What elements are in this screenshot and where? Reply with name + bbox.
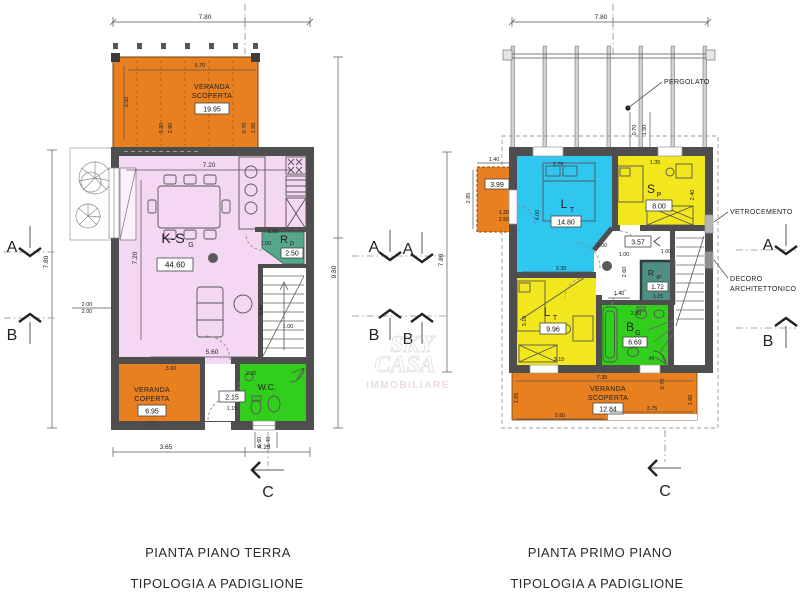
ff-dim-b2-w: 1.35 bbox=[650, 160, 661, 166]
gf-dim-veranda-height: 3.50 bbox=[124, 97, 130, 108]
gf-dim-ls2: 2.00 bbox=[82, 309, 93, 315]
floor-plan-page: 7.80 5.70 3.50 VERANDA SCOPERTA 19.95 3 bbox=[0, 0, 800, 600]
ff-dim-hall-h: 2.60 bbox=[622, 267, 628, 278]
gf-dim-room-w: 7.20 bbox=[203, 162, 216, 169]
section-marker-a-ff-right: A bbox=[763, 224, 797, 254]
gf-veranda-coperta-name2: COPERTA bbox=[134, 396, 169, 403]
svg-text:B: B bbox=[369, 327, 380, 344]
gf-dim-ls1: 2.00 bbox=[82, 302, 93, 308]
svg-text:B: B bbox=[7, 327, 18, 344]
floor-plan-drawing: 7.80 5.70 3.50 VERANDA SCOPERTA 19.95 3 bbox=[0, 0, 800, 600]
svg-text:A: A bbox=[369, 239, 380, 256]
ff-ripostiglio-area: 1.72 bbox=[651, 284, 664, 291]
ff-dim-ps1: 0.70 bbox=[632, 125, 638, 136]
gf-dim-vss1: 3.20 bbox=[159, 123, 165, 134]
ff-decoro-label1: DECORO bbox=[730, 276, 763, 283]
ff-decoro-label2: ARCHITETTONICO bbox=[730, 286, 797, 293]
gf-dim-bs2: 1.40 bbox=[266, 437, 272, 448]
ff-right-annotations: VETROCEMENTO DECORO ARCHITETTONICO bbox=[714, 209, 797, 293]
ff-bedroom2-area: 8.00 bbox=[652, 204, 666, 211]
ff-dim-bal-s1: 1.20 bbox=[499, 210, 510, 216]
gf-dim-top: 7.80 bbox=[199, 14, 212, 21]
gf-veranda-scoperta-area: 19.95 bbox=[203, 107, 221, 114]
ff-dim-bal-h: 2.85 bbox=[466, 193, 472, 204]
ff-veranda-name1: VERANDA bbox=[590, 386, 626, 393]
ff-bedroom1-label: L bbox=[561, 197, 568, 211]
gf-dim-rp-w: 1.90 bbox=[268, 229, 279, 235]
ff-dim-left: 7.80 bbox=[438, 253, 445, 266]
svg-text:A: A bbox=[7, 239, 18, 256]
ff-bedroom3-area: 9.96 bbox=[546, 327, 560, 334]
ff-dim-ver-t: 7.35 bbox=[597, 375, 608, 381]
ff-caption-line1: PIANTA PRIMO PIANO bbox=[528, 545, 673, 560]
ff-ripostiglio-label: R bbox=[648, 268, 654, 278]
gf-dim-left: 7.80 bbox=[43, 255, 50, 268]
gf-dim-bottom1: 3.65 bbox=[160, 444, 173, 451]
ff-bedroom3-room bbox=[516, 278, 596, 366]
ff-dim-ps2: 1.50 bbox=[642, 125, 648, 136]
ff-hallway-arrow bbox=[654, 237, 660, 246]
gf-dim-bs1: 0.60 bbox=[257, 437, 263, 448]
gf-wc-label: W.C. bbox=[258, 382, 276, 392]
gf-kitchen-living-sub: G bbox=[188, 242, 193, 249]
gf-veranda-coperta-area: 6.95 bbox=[145, 409, 159, 416]
section-marker-a-gf-right: A bbox=[369, 230, 401, 260]
gf-kitchen-living-area: 44.60 bbox=[165, 261, 186, 270]
ff-ripostiglio-sub: IP bbox=[656, 275, 662, 281]
ff-dim-ver-s: 0.70 bbox=[660, 379, 666, 390]
svg-text:CASA: CASA bbox=[374, 352, 435, 378]
ff-dim-rip-w: 1.15 bbox=[653, 294, 663, 300]
gf-column bbox=[208, 253, 218, 263]
ff-dim-ver-l: 1.85 bbox=[514, 393, 520, 404]
ff-dim-hall2: 1.00 bbox=[661, 249, 672, 255]
section-marker-a-ff-left: A bbox=[403, 232, 433, 262]
svg-text:B: B bbox=[763, 333, 774, 350]
section-marker-a-gf-left: A bbox=[7, 226, 41, 256]
gf-dim-vss3: 0.70 bbox=[242, 123, 248, 134]
gf-veranda-scoperta-name1: VERANDA bbox=[194, 84, 230, 91]
ff-dim-ver-b1: 3.50 bbox=[555, 413, 566, 419]
ff-veranda-name2: SCOPERTA bbox=[588, 395, 628, 402]
ff-veranda-area: 12.84 bbox=[599, 407, 617, 414]
ff-dim-bal-s2: 2.50 bbox=[499, 217, 510, 223]
section-marker-b-gf-left: B bbox=[7, 314, 41, 344]
section-marker-b-ff-right: B bbox=[763, 318, 797, 350]
ff-top-dimension: 7.80 bbox=[509, 14, 711, 27]
ff-dim-b1-w: 3.75 bbox=[553, 162, 564, 168]
gf-ripostiglio-area: 2.50 bbox=[285, 251, 299, 258]
gf-dim-cor-w: 1.15 bbox=[227, 406, 238, 412]
ff-dim-b3-h: 3.10 bbox=[522, 316, 528, 327]
ff-hallway-area: 3.57 bbox=[631, 240, 645, 247]
ff-bedroom1-area: 14.80 bbox=[557, 220, 575, 227]
ff-dim-ver-r: 1.60 bbox=[688, 395, 694, 406]
gf-veranda-posts bbox=[113, 43, 258, 49]
svg-text:A: A bbox=[403, 241, 414, 258]
gf-dim-rp-h: 1.00 bbox=[261, 241, 272, 247]
gf-dim-vss4: 1.50 bbox=[251, 123, 257, 134]
ff-dim-bath-s: .45 bbox=[648, 356, 655, 362]
captions: PIANTA PIANO TERRA TIPOLOGIA A PADIGLION… bbox=[130, 545, 683, 591]
gf-dim-stair-h: 3.60 bbox=[259, 305, 265, 316]
gf-ripostiglio-sub: P bbox=[290, 241, 294, 248]
ff-dim-b1-b: 3.35 bbox=[556, 266, 567, 272]
ff-dim-b1-d: 1.00 bbox=[597, 243, 608, 249]
ff-dim-hall1: 1.00 bbox=[619, 252, 630, 258]
svg-text:C: C bbox=[262, 484, 274, 501]
gf-bottom-dimension: 3.65 4.15 0.60 1.40 bbox=[113, 432, 310, 457]
ff-dim-b2-h: 2.40 bbox=[690, 190, 696, 201]
ff-vetrocemento-label: VETROCEMENTO bbox=[730, 209, 793, 216]
ff-dim-hall-b: 1.40 bbox=[614, 291, 625, 297]
gf-dim-wc-t: 2.30 bbox=[246, 371, 256, 377]
svg-text:A: A bbox=[763, 237, 774, 254]
ff-dim-bal-w: 1.40 bbox=[489, 157, 500, 163]
ff-bathroom-sub: G bbox=[635, 330, 640, 337]
ff-dim-top: 7.80 bbox=[595, 14, 608, 21]
gf-dim-vss2: 2.90 bbox=[168, 123, 174, 134]
ff-caption-line2: TIPOLOGIA A PADIGLIONE bbox=[510, 576, 683, 591]
ff-bedroom3-sub: T bbox=[553, 315, 558, 322]
ff-dim-ver-b2: 3.75 bbox=[647, 406, 658, 412]
ff-bedroom2-label: S bbox=[647, 182, 655, 196]
gf-caption-line2: TIPOLOGIA A PADIGLIONE bbox=[130, 576, 303, 591]
gf-corridor-area: 2.15 bbox=[225, 395, 239, 402]
section-marker-c-ff: C bbox=[649, 430, 681, 500]
gf-dim-room-b: 5.60 bbox=[206, 349, 219, 356]
ff-bathroom-label: B bbox=[626, 320, 634, 334]
ground-floor-plan: 7.80 5.70 3.50 VERANDA SCOPERTA 19.95 3 bbox=[43, 4, 343, 457]
ff-bathroom-area: 6.69 bbox=[628, 340, 642, 347]
ff-bedroom1-sub: T bbox=[570, 207, 575, 214]
ff-dim-bath-w: 2.80 bbox=[631, 311, 642, 317]
gf-caption-line1: PIANTA PIANO TERRA bbox=[145, 545, 291, 560]
gf-kitchen-living-label: K-S bbox=[161, 230, 184, 246]
first-floor-plan: 7.80 PERGOLATO 0.70 1.50 bbox=[438, 4, 797, 428]
ff-column bbox=[602, 261, 612, 271]
ff-pergolato-label: PERGOLATO bbox=[664, 79, 710, 86]
gf-ripostiglio-label: R bbox=[280, 234, 288, 246]
svg-text:IMMOBILIARE: IMMOBILIARE bbox=[366, 380, 450, 391]
ff-bedroom3-label: L bbox=[544, 305, 551, 319]
gf-dim-stair-w: 1.00 bbox=[283, 324, 294, 330]
ff-balcony-area: 3.99 bbox=[490, 182, 504, 189]
gf-dim-room-h: 7.20 bbox=[132, 251, 139, 264]
gf-dim-veranda-width: 5.70 bbox=[195, 63, 206, 69]
gf-veranda-scoperta: 5.70 3.50 VERANDA SCOPERTA 19.95 3.20 2.… bbox=[111, 43, 260, 148]
gf-dim-right: 9.80 bbox=[331, 265, 338, 278]
gf-veranda-coperta-name1: VERANDA bbox=[134, 387, 170, 394]
svg-text:C: C bbox=[659, 483, 671, 500]
ff-bedroom2-sub: P bbox=[657, 192, 662, 199]
ff-dim-b3-b: 3.15 bbox=[554, 357, 565, 363]
ff-dim-b1-h: 4.00 bbox=[535, 210, 541, 221]
gf-dim-cor-t: 3.60 bbox=[166, 366, 177, 372]
gf-veranda-scoperta-name2: SCOPERTA bbox=[192, 93, 232, 100]
gf-top-dimension: 7.80 bbox=[110, 14, 313, 27]
